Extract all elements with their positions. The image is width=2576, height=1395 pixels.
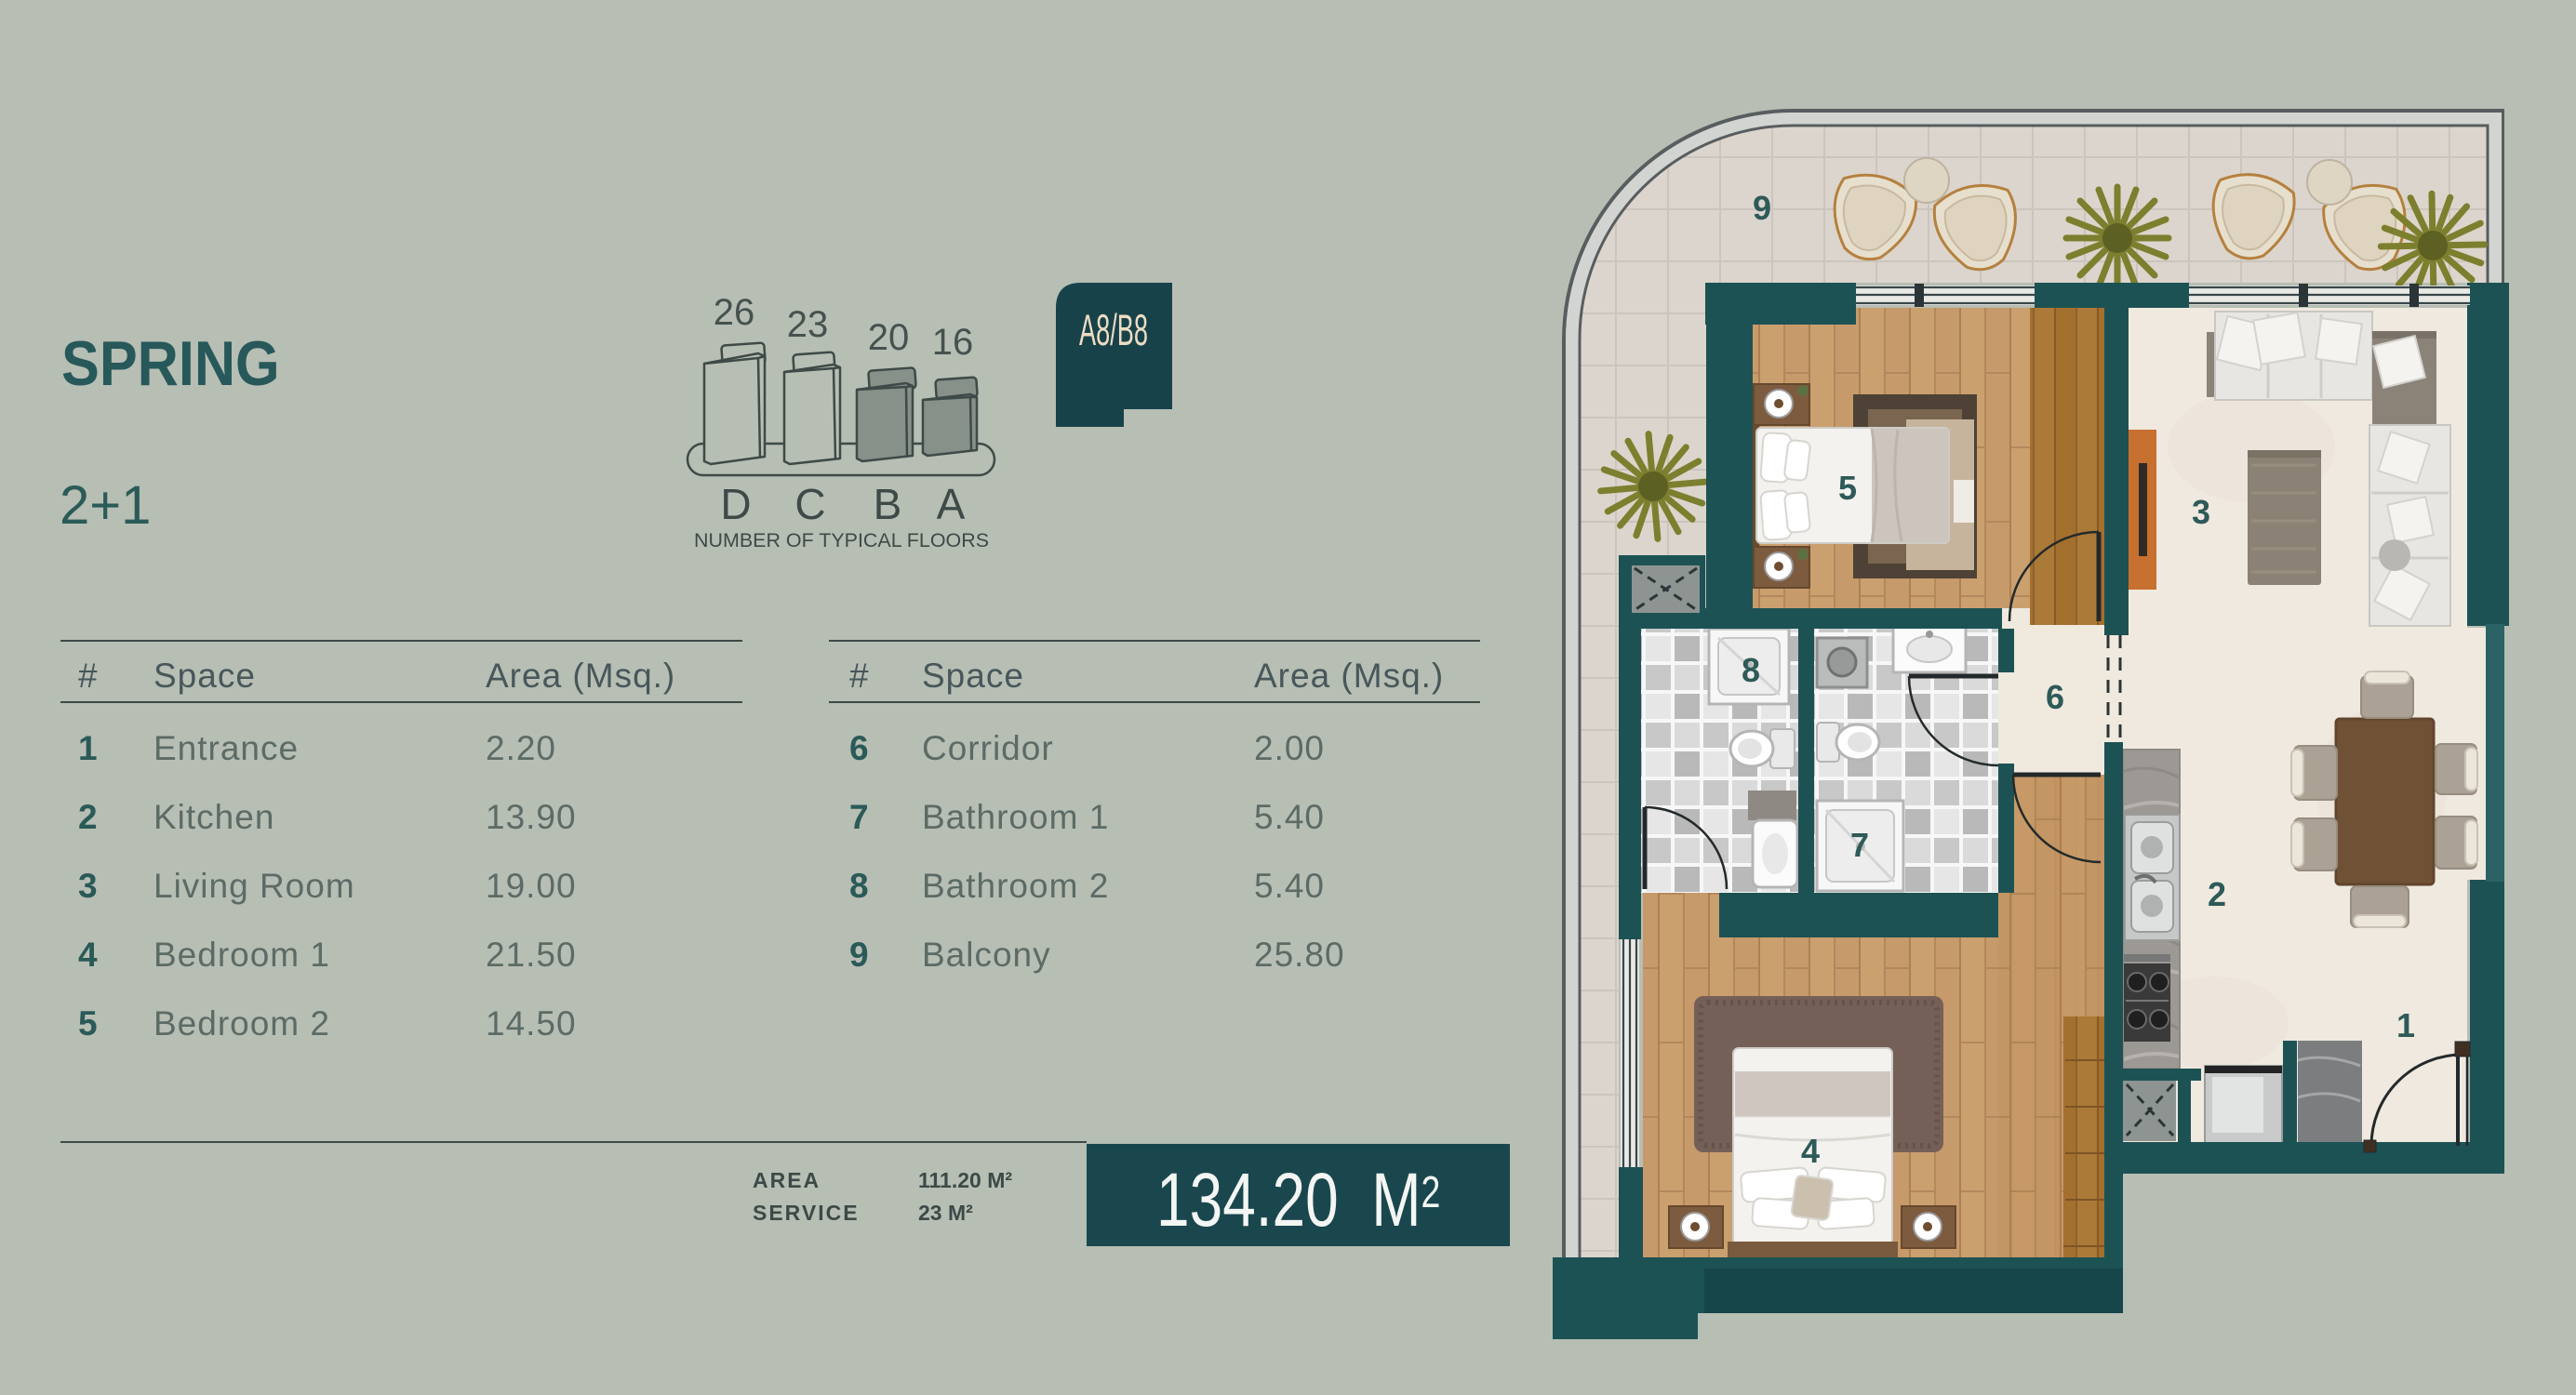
svg-text:4: 4 — [1801, 1132, 1820, 1170]
svg-text:1: 1 — [2396, 1006, 2415, 1044]
svg-text:5: 5 — [1838, 469, 1857, 507]
svg-text:8: 8 — [1742, 651, 1760, 689]
svg-text:9: 9 — [1753, 189, 1771, 227]
svg-text:3: 3 — [2192, 493, 2210, 531]
svg-text:6: 6 — [2046, 678, 2064, 716]
svg-text:2: 2 — [2208, 875, 2226, 913]
svg-text:7: 7 — [1850, 826, 1869, 864]
